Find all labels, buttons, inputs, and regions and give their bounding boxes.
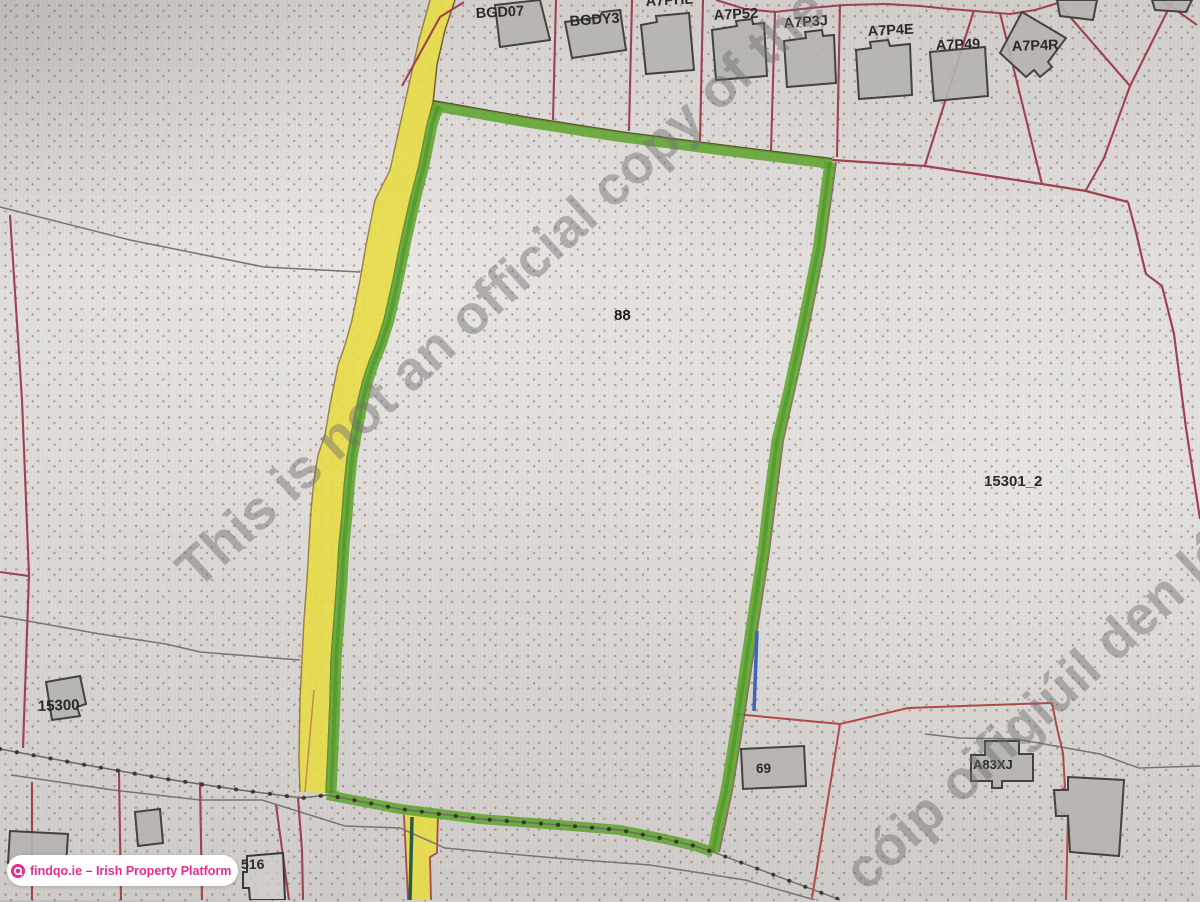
svg-text:A7P49: A7P49 [936,36,981,54]
svg-text:69: 69 [756,761,771,776]
svg-text:15300: 15300 [38,697,80,715]
svg-text:516: 516 [241,856,265,872]
svg-text:A7P4E: A7P4E [867,22,914,40]
svg-text:15301_2: 15301_2 [984,473,1042,490]
svg-text:BGD07: BGD07 [475,3,524,22]
svg-text:A7P4R: A7P4R [1012,37,1060,55]
svg-text:88: 88 [614,307,631,324]
svg-text:A7PHL: A7PHL [645,0,693,10]
